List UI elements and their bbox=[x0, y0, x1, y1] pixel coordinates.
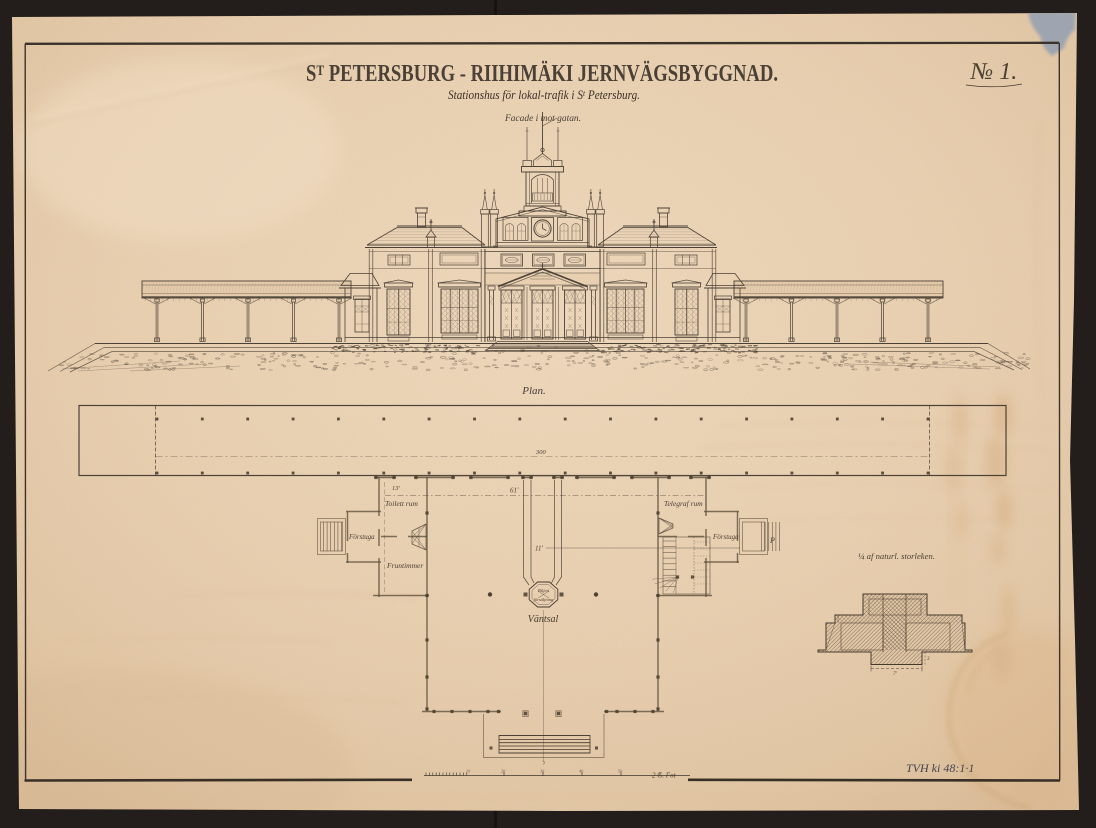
svg-text:Plan.: Plan. bbox=[521, 385, 546, 397]
svg-text:försäljning: försäljning bbox=[534, 597, 555, 602]
svg-text:TVH ki 48:1·1: TVH ki 48:1·1 bbox=[906, 761, 974, 775]
svg-text:Förstuga: Förstuga bbox=[712, 533, 739, 541]
svg-text:2 G. Fot: 2 G. Fot bbox=[652, 772, 677, 780]
svg-text:Toilett rum: Toilett rum bbox=[385, 499, 418, 508]
svg-text:Förstuga: Förstuga bbox=[348, 533, 375, 541]
svg-text:11′: 11′ bbox=[535, 545, 543, 553]
svg-text:Fruntimmer: Fruntimmer bbox=[386, 561, 423, 570]
svg-text:Biljett: Biljett bbox=[538, 588, 550, 593]
svg-text:¼ af naturl. storleken.: ¼ af naturl. storleken. bbox=[858, 551, 935, 561]
svg-text:13′: 13′ bbox=[392, 485, 401, 492]
svg-text:61′: 61′ bbox=[510, 487, 519, 495]
svg-text:Stationshus för lokal-trafik i: Stationshus för lokal-trafik i St Peters… bbox=[448, 88, 640, 102]
svg-text:ST PETERSBURG - RIIHIMÄKI JERN: ST PETERSBURG - RIIHIMÄKI JERNVÄGSBYGGNA… bbox=[306, 61, 778, 87]
svg-text:№ 1.: № 1. bbox=[970, 59, 1018, 85]
svg-text:300: 300 bbox=[535, 449, 547, 456]
svg-text:Telegraf rum: Telegraf rum bbox=[664, 499, 703, 508]
svg-text:Väntsal: Väntsal bbox=[528, 614, 559, 625]
